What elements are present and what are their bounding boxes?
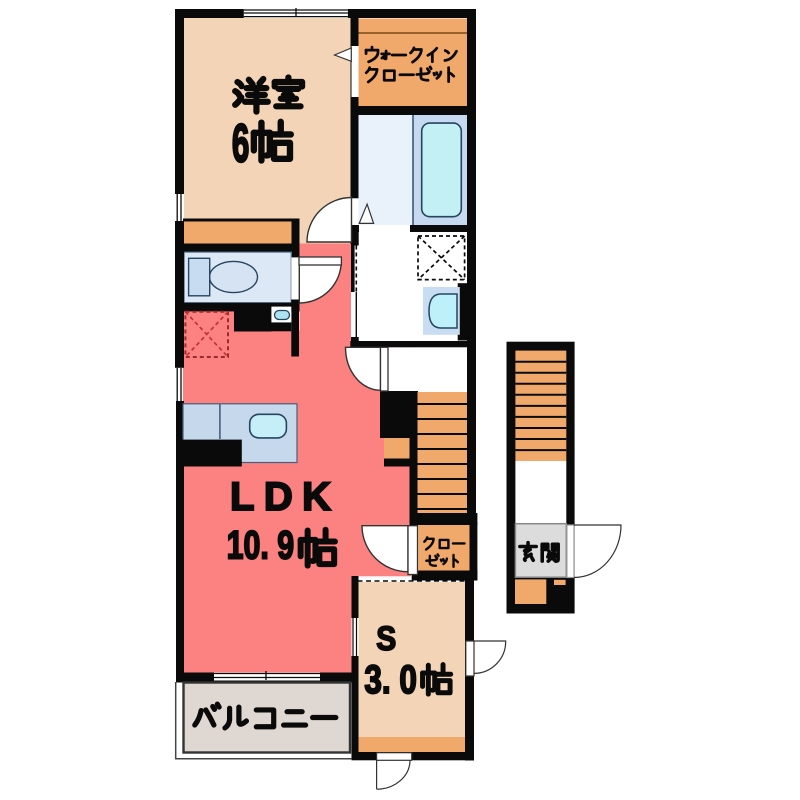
svg-text:6: 6 <box>232 114 250 174</box>
svg-text:10. 9: 10. 9 <box>227 523 295 567</box>
svg-text:LDK: LDK <box>230 475 331 519</box>
svg-text:3. 0: 3. 0 <box>364 658 417 702</box>
svg-text:S: S <box>376 620 396 658</box>
